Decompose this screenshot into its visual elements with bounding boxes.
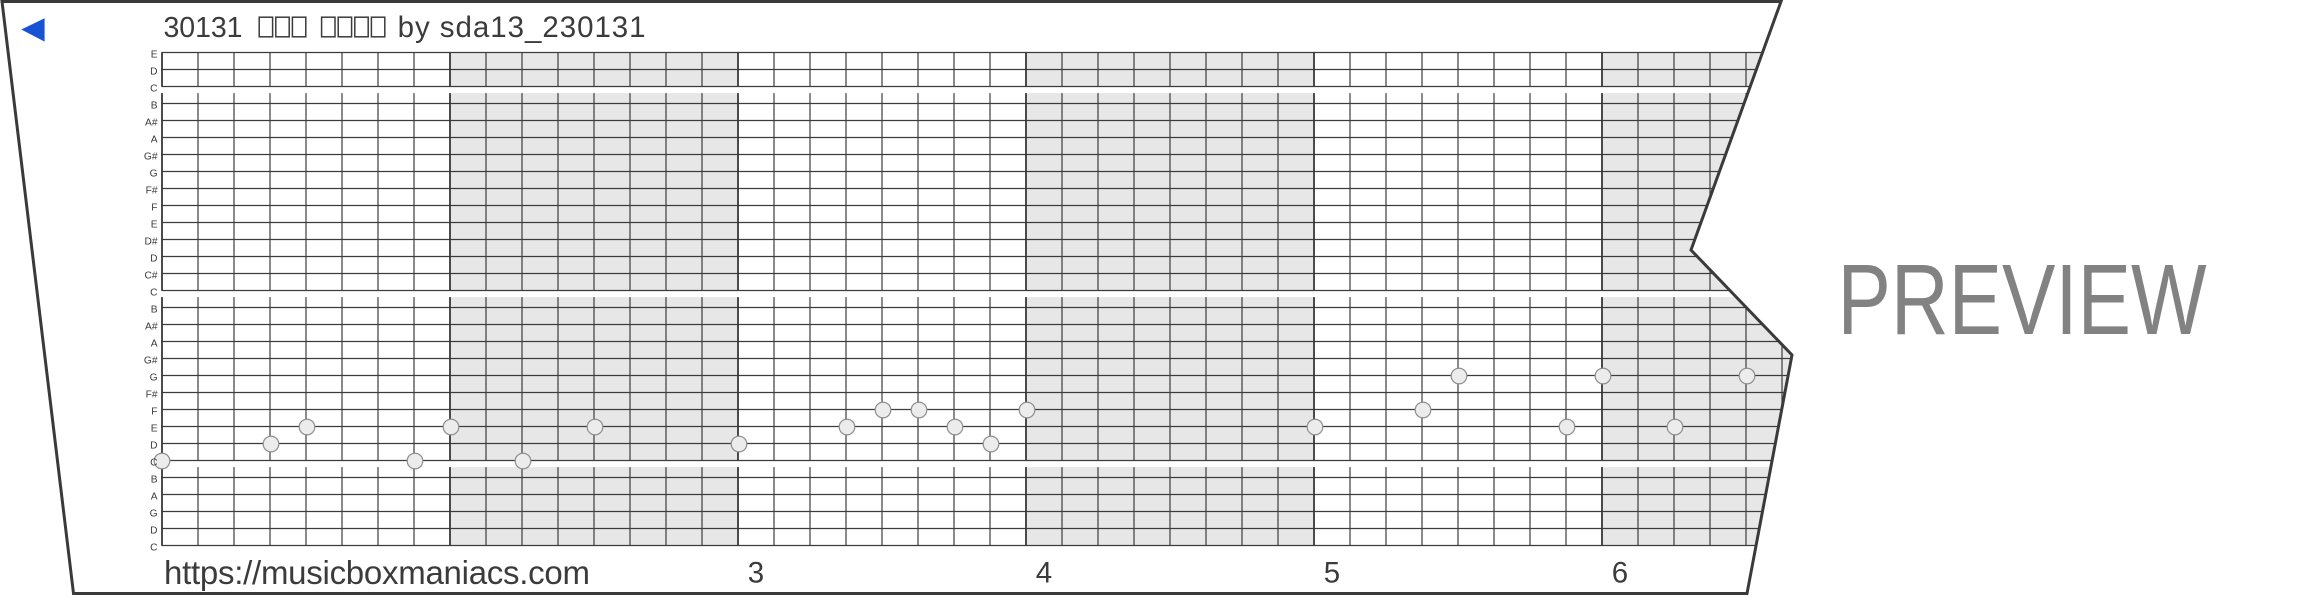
svg-text:A#: A# <box>145 118 158 129</box>
svg-text:D#: D# <box>144 237 157 248</box>
svg-text:A: A <box>151 339 158 350</box>
svg-text:D: D <box>150 67 157 78</box>
svg-text:B: B <box>151 101 158 112</box>
svg-text:A: A <box>151 135 158 146</box>
svg-text:B: B <box>151 305 158 316</box>
svg-text:4: 4 <box>1036 557 1052 590</box>
svg-text:C: C <box>150 84 157 95</box>
svg-text:E: E <box>151 424 158 435</box>
svg-text:F: F <box>151 407 157 418</box>
svg-text:PREVIEW: PREVIEW <box>1838 244 2207 356</box>
svg-text:B: B <box>151 475 158 486</box>
svg-text:30131: 30131 <box>164 12 243 44</box>
svg-text:A: A <box>151 492 158 503</box>
svg-text:6: 6 <box>1612 557 1628 590</box>
svg-text:C: C <box>150 288 157 299</box>
svg-text:G#: G# <box>144 152 158 163</box>
svg-text:3: 3 <box>748 557 764 590</box>
svg-text:https://musicboxmaniacs.com: https://musicboxmaniacs.com <box>164 554 590 591</box>
svg-text:G#: G# <box>144 356 158 367</box>
svg-text:F#: F# <box>146 186 158 197</box>
svg-text:F: F <box>151 203 157 214</box>
svg-text:C#: C# <box>144 271 157 282</box>
svg-text:G: G <box>150 509 158 520</box>
svg-text:C: C <box>150 458 157 469</box>
svg-text:A#: A# <box>145 322 158 333</box>
svg-text:D: D <box>150 441 157 452</box>
svg-text:E: E <box>151 220 158 231</box>
svg-text:E: E <box>151 50 158 61</box>
svg-text:G: G <box>150 373 158 384</box>
svg-text:by sda13_230131: by sda13_230131 <box>398 11 646 44</box>
svg-text:F#: F# <box>146 390 158 401</box>
svg-text:D: D <box>150 526 157 537</box>
svg-text:5: 5 <box>1324 557 1340 590</box>
svg-text:D: D <box>150 254 157 265</box>
svg-text:G: G <box>150 169 158 180</box>
svg-text:C: C <box>150 543 157 554</box>
